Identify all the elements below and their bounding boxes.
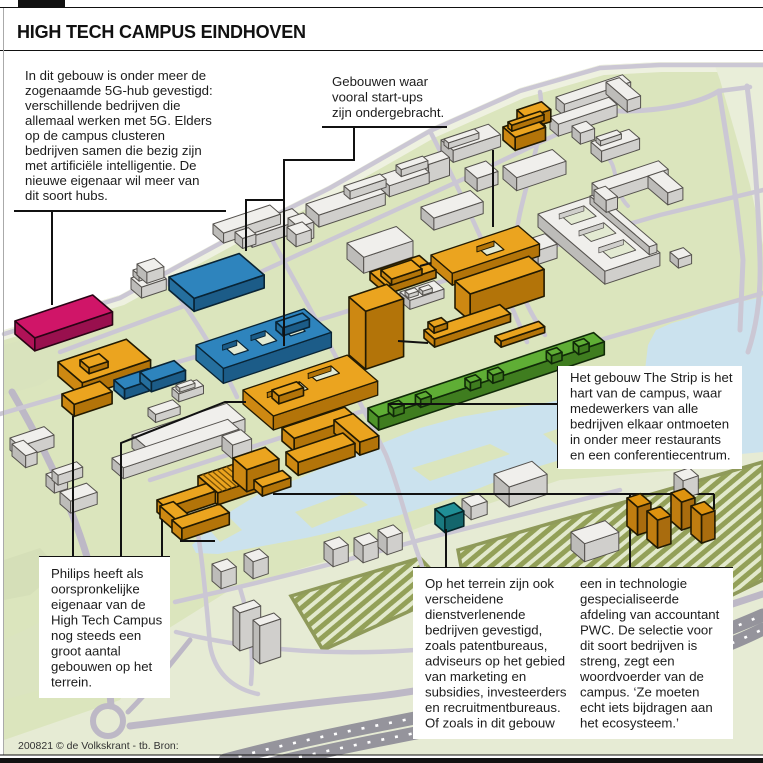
svg-text:200821 © de Volkskrant - tb. B: 200821 © de Volkskrant - tb. Bron:	[18, 740, 179, 752]
svg-text:Het gebouw The Strip is het ha: Het gebouw The Strip is het hart van de …	[570, 370, 736, 463]
svg-text:HIGH TECH CAMPUS EINDHOVEN: HIGH TECH CAMPUS EINDHOVEN	[17, 22, 306, 42]
